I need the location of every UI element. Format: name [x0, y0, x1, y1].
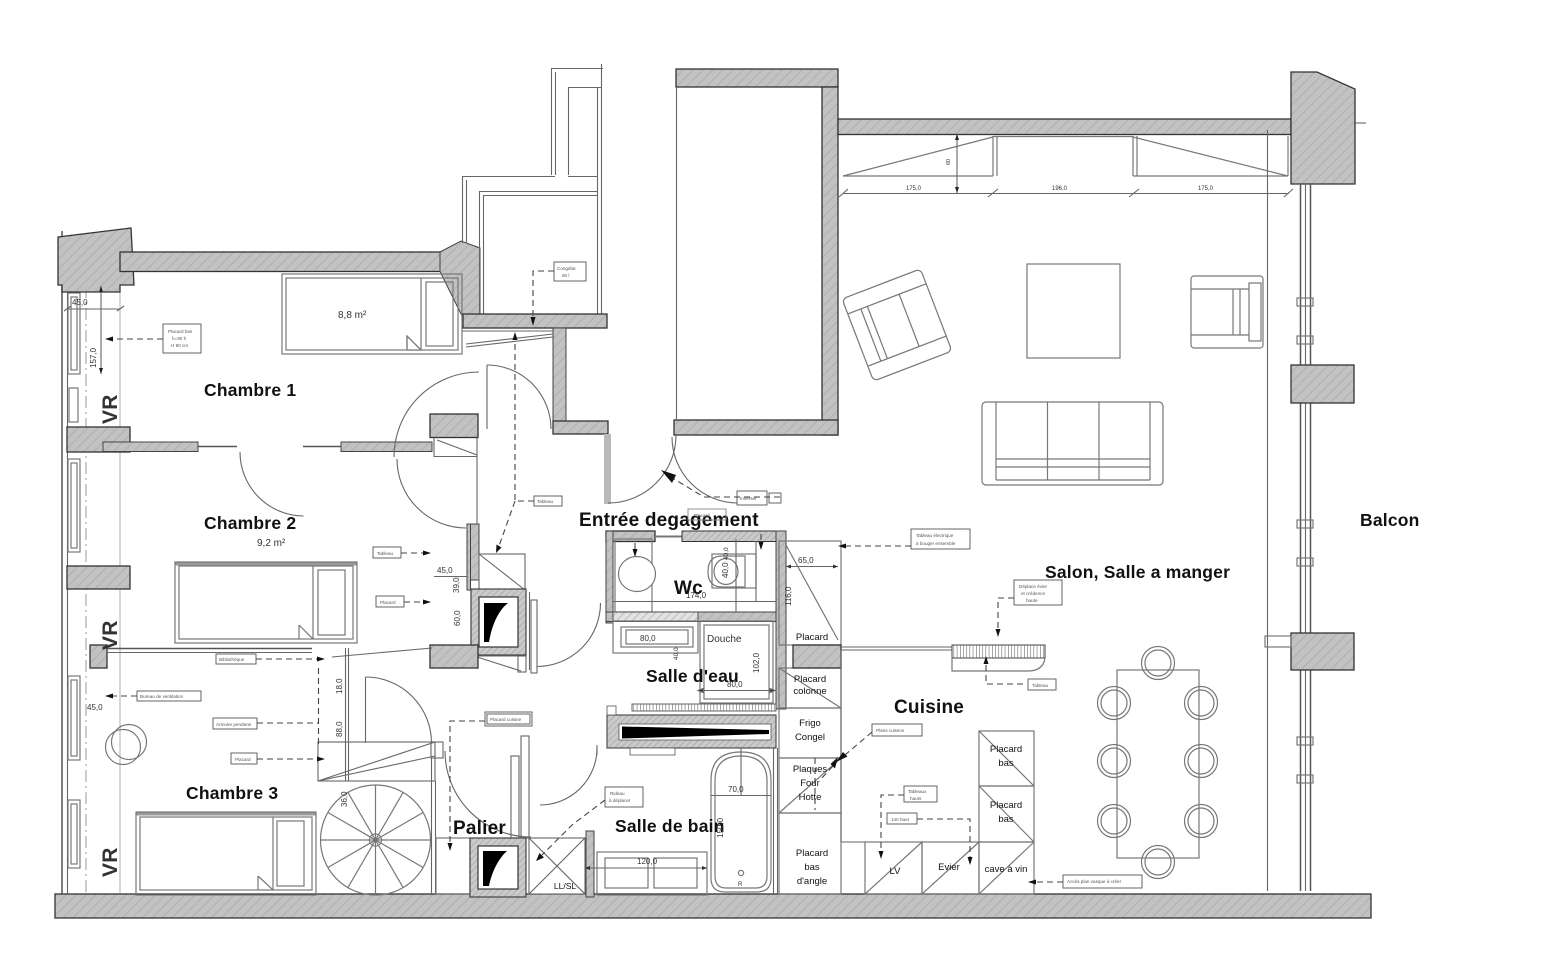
svg-text:Douche: Douche — [707, 634, 742, 645]
svg-text:45,0: 45,0 — [72, 298, 88, 307]
svg-text:Accès plan vasque à créer: Accès plan vasque à créer — [1067, 879, 1122, 884]
svg-text:8,8 m²: 8,8 m² — [338, 310, 367, 321]
svg-text:Salle d'eau: Salle d'eau — [646, 666, 739, 686]
svg-text:Armoire penderie: Armoire penderie — [216, 722, 252, 727]
svg-text:et crédence: et crédence — [1021, 591, 1045, 596]
svg-text:Hotte: Hotte — [799, 792, 822, 803]
svg-text:157,0: 157,0 — [89, 347, 98, 368]
svg-text:70,0: 70,0 — [728, 785, 744, 794]
svg-text:40,0: 40,0 — [723, 547, 730, 560]
svg-text:80,0: 80,0 — [727, 680, 743, 689]
svg-text:Plans cuisson: Plans cuisson — [876, 728, 905, 733]
svg-text:Tableau: Tableau — [1032, 683, 1049, 688]
svg-text:Chambre 1: Chambre 1 — [204, 380, 296, 400]
svg-text:bas: bas — [804, 862, 820, 873]
svg-text:60 l: 60 l — [562, 273, 569, 278]
svg-text:Placard bas: Placard bas — [168, 329, 193, 334]
svg-text:39,0: 39,0 — [452, 577, 461, 593]
svg-text:Bibliothèque: Bibliothèque — [219, 657, 245, 662]
svg-text:haute: haute — [1026, 598, 1038, 603]
svg-text:Entrée degagement: Entrée degagement — [579, 510, 759, 531]
svg-text:Chambre 3: Chambre 3 — [186, 783, 278, 803]
svg-text:d'angle: d'angle — [797, 876, 827, 887]
svg-text:150,0: 150,0 — [716, 817, 725, 838]
svg-text:Tableau: Tableau — [377, 551, 394, 556]
svg-text:Bureau de ventilation: Bureau de ventilation — [140, 694, 184, 699]
svg-text:bas: bas — [998, 814, 1014, 825]
svg-text:Evier: Evier — [938, 862, 960, 873]
svg-text:45,0: 45,0 — [437, 566, 453, 575]
svg-text:VR: VR — [99, 847, 122, 877]
svg-text:Placard: Placard — [796, 848, 828, 859]
svg-text:Tableau: Tableau — [537, 499, 554, 504]
svg-text:102,0: 102,0 — [752, 652, 761, 673]
svg-text:bas: bas — [998, 758, 1014, 769]
svg-text:Placard: Placard — [990, 744, 1022, 755]
svg-text:45,0: 45,0 — [87, 703, 103, 712]
svg-text:65,0: 65,0 — [798, 556, 814, 565]
svg-text:Frigo: Frigo — [799, 718, 821, 729]
svg-text:Congel: Congel — [795, 732, 825, 743]
svg-text:Déplace évier: Déplace évier — [1019, 584, 1048, 589]
svg-text:140 haut: 140 haut — [891, 817, 910, 822]
svg-text:R: R — [738, 882, 743, 888]
svg-text:Placard: Placard — [796, 632, 828, 643]
svg-text:175,0: 175,0 — [1198, 186, 1214, 192]
svg-text:Placard: Placard — [235, 757, 251, 762]
svg-text:hauts: hauts — [910, 796, 922, 801]
svg-text:Placard: Placard — [380, 600, 396, 605]
svg-text:Cuisine: Cuisine — [894, 697, 964, 718]
svg-text:116,0: 116,0 — [784, 586, 793, 606]
svg-text:Salle de bain: Salle de bain — [615, 816, 725, 836]
svg-text:175,0: 175,0 — [906, 186, 922, 192]
svg-text:H 90 cm: H 90 cm — [171, 343, 188, 348]
svg-text:Chambre 2: Chambre 2 — [204, 513, 296, 533]
svg-text:36,0: 36,0 — [340, 791, 349, 807]
svg-text:Palier: Palier — [453, 818, 506, 839]
svg-text:Placard: Placard — [694, 513, 710, 518]
svg-text:196,0: 196,0 — [1052, 186, 1068, 192]
svg-text:Balcon: Balcon — [1360, 510, 1420, 530]
svg-text:120,0: 120,0 — [637, 857, 658, 866]
svg-text:40,0: 40,0 — [673, 647, 680, 660]
svg-text:LL/SL: LL/SL — [554, 881, 576, 891]
svg-text:LV: LV — [890, 866, 902, 877]
svg-text:18,0: 18,0 — [335, 678, 344, 694]
svg-text:60: 60 — [946, 159, 952, 165]
svg-text:Placard: Placard — [794, 674, 826, 685]
svg-text:VR: VR — [99, 620, 122, 650]
svg-text:Congélat.: Congélat. — [557, 266, 577, 271]
svg-text:80,0: 80,0 — [640, 634, 656, 643]
svg-text:Plaques: Plaques — [793, 764, 828, 775]
svg-text:Salon, Salle a manger: Salon, Salle a manger — [1045, 562, 1230, 582]
svg-text:h=90 h: h=90 h — [172, 336, 187, 341]
svg-text:40,0: 40,0 — [721, 562, 730, 578]
svg-text:9,2 m²: 9,2 m² — [257, 538, 286, 549]
svg-text:à bouger ensemble: à bouger ensemble — [916, 541, 956, 546]
svg-text:88,0: 88,0 — [335, 721, 344, 737]
svg-text:Four: Four — [800, 778, 820, 789]
svg-text:Tableaux: Tableaux — [908, 789, 927, 794]
svg-text:Rideau: Rideau — [610, 791, 625, 796]
svg-text:colonne: colonne — [793, 686, 826, 697]
svg-text:Placard cuisine: Placard cuisine — [490, 717, 522, 722]
svg-text:Placard: Placard — [990, 800, 1022, 811]
svg-text:à déplacer: à déplacer — [609, 798, 631, 803]
svg-text:60,0: 60,0 — [453, 610, 462, 626]
svg-text:VR: VR — [99, 394, 122, 424]
svg-text:cave à vin: cave à vin — [985, 864, 1028, 875]
svg-text:174,0: 174,0 — [686, 591, 707, 600]
svg-text:Tableau électrique: Tableau électrique — [916, 533, 954, 538]
